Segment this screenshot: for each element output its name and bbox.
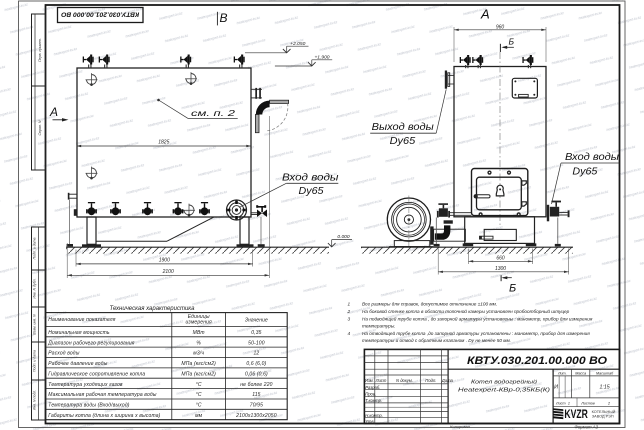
svg-text:Значение: Значение <box>245 318 268 324</box>
svg-text:960: 960 <box>496 24 505 30</box>
svg-text:А: А <box>49 105 58 119</box>
svg-text:Б: Б <box>509 283 516 295</box>
svg-text:70/95: 70/95 <box>250 403 263 409</box>
svg-text:°С: °С <box>196 392 202 398</box>
svg-text:2: 2 <box>347 309 351 314</box>
svg-text:Т.контр.: Т.контр. <box>365 398 382 403</box>
svg-text:1: 1 <box>568 402 570 406</box>
svg-text:0,06 (0,6): 0,06 (0,6) <box>245 372 268 378</box>
svg-text:+2.050: +2.050 <box>290 41 305 47</box>
svg-text:%: % <box>196 340 201 346</box>
svg-text:+1.900: +1.900 <box>314 55 329 61</box>
svg-text:1900: 1900 <box>159 258 170 264</box>
svg-text:температуры.: температуры. <box>362 324 396 329</box>
svg-text:МПа (кгс/см2): МПа (кгс/см2) <box>181 372 216 378</box>
svg-text:На боковой стенке котла в обла: На боковой стенке котла в области топочн… <box>362 308 570 314</box>
svg-text:Heatexpert-КВр-0,35КБ(К): Heatexpert-КВр-0,35КБ(К) <box>458 387 550 393</box>
svg-text:Пров.: Пров. <box>365 392 376 397</box>
svg-text:м3/ч: м3/ч <box>193 351 204 357</box>
svg-text:На подводящей трубе котла ,: На подводящей трубе котла , до запорной … <box>362 316 593 322</box>
svg-text:А: А <box>480 6 490 21</box>
svg-text:измерения: измерения <box>186 320 213 326</box>
svg-text:Перв. примен.: Перв. примен. <box>38 38 42 62</box>
svg-text:Все размеры для справок, допус: Все размеры для справок, допустимое откл… <box>362 301 497 306</box>
svg-text:Справ. N: Справ. N <box>38 120 42 135</box>
svg-text:1: 1 <box>348 301 351 306</box>
svg-text:Dy65: Dy65 <box>390 135 416 147</box>
svg-text:KVZR: KVZR <box>564 407 588 421</box>
svg-text:см. п. 2: см. п. 2 <box>191 108 235 118</box>
svg-text:Габариты котла (длина х ширина: Габариты котла (длина х ширина х высота) <box>48 413 160 419</box>
svg-text:Подп. и дата: Подп. и дата <box>33 350 37 372</box>
svg-text:°С: °С <box>196 403 202 409</box>
svg-text:ЗАВОД РЭП: ЗАВОД РЭП <box>592 415 614 419</box>
svg-text:мм: мм <box>195 413 203 419</box>
svg-text:2100х1300х2050: 2100х1300х2050 <box>235 413 277 419</box>
svg-text:1:15: 1:15 <box>600 385 610 391</box>
svg-text:И: И <box>554 384 558 390</box>
svg-text:МПа (кгс/см2): МПа (кгс/см2) <box>181 361 216 367</box>
svg-text:Выход воды: Выход воды <box>372 121 434 133</box>
svg-text:Максимальная рабочая температу: Максимальная рабочая температура воды <box>48 392 157 398</box>
svg-text:1300: 1300 <box>495 266 506 272</box>
svg-text:Разраб.: Разраб. <box>365 385 380 390</box>
svg-text:0,35: 0,35 <box>251 330 261 336</box>
svg-text:Dy65: Dy65 <box>572 166 597 178</box>
svg-text:Формат А3: Формат А3 <box>575 424 599 429</box>
svg-text:Подп.: Подп. <box>425 378 436 383</box>
svg-text:1825: 1825 <box>158 140 169 146</box>
svg-text:МВт: МВт <box>193 330 205 336</box>
svg-text:Дата: Дата <box>441 378 454 383</box>
svg-text:2100: 2100 <box>162 269 174 275</box>
svg-text:не более 220: не более 220 <box>240 382 272 388</box>
svg-text:Взам. инв. N: Взам. инв. N <box>33 314 37 335</box>
svg-text:12: 12 <box>253 351 259 357</box>
svg-text:Н.контр.: Н.контр. <box>365 413 383 418</box>
svg-text:Инв. N дубл.: Инв. N дубл. <box>33 278 37 298</box>
svg-text:115: 115 <box>252 392 260 398</box>
svg-text:температуры и отвод с обратным: температуры и отвод с обратным клапаном … <box>362 338 511 343</box>
svg-text:Вход воды: Вход воды <box>282 172 339 184</box>
svg-text:Диапазон рабочего регулировани: Диапазон рабочего регулирования <box>47 340 134 346</box>
svg-text:Гидравлическое сопротивление к: Гидравлическое сопротивление котла <box>48 372 145 378</box>
svg-text:3: 3 <box>348 317 351 322</box>
svg-text:Номинальная мощность: Номинальная мощность <box>48 330 110 336</box>
svg-text:Копировал: Копировал <box>450 424 471 429</box>
svg-text:Техническая характеристика: Техническая характеристика <box>110 306 196 312</box>
svg-text:Листов: Листов <box>580 402 595 406</box>
svg-text:Температура воды (Вход/выход): Температура воды (Вход/выход) <box>48 403 129 409</box>
svg-text:Лит.: Лит. <box>557 371 567 375</box>
svg-text:На отводящей трубе котла ,до з: На отводящей трубе котла ,до запорной ар… <box>362 330 590 336</box>
svg-text:Вход воды: Вход воды <box>565 151 619 163</box>
svg-text:0,6 (6,0): 0,6 (6,0) <box>246 361 266 367</box>
svg-text:2: 2 <box>607 402 610 406</box>
svg-text:КОТЕЛЬНЫЙ: КОТЕЛЬНЫЙ <box>592 410 616 414</box>
svg-text:Изм.: Изм. <box>365 378 374 383</box>
svg-text:Лист: Лист <box>375 378 387 383</box>
svg-text:N докум.: N докум. <box>396 378 413 383</box>
svg-text:Температура уходящих газов: Температура уходящих газов <box>48 382 123 388</box>
svg-text:Котел водогрейный: Котел водогрейный <box>471 379 538 386</box>
svg-text:°С: °С <box>196 382 202 388</box>
svg-text:Лист: Лист <box>555 402 566 406</box>
svg-text:660: 660 <box>496 255 505 261</box>
svg-text:50-100: 50-100 <box>248 340 265 346</box>
svg-text:КВТУ.030.201.00.000 ВО: КВТУ.030.201.00.000 ВО <box>60 11 139 18</box>
svg-text:Утв.: Утв. <box>365 419 375 424</box>
svg-text:Рабочее давление воды: Рабочее давление воды <box>48 361 107 367</box>
svg-text:Подп. и дата: Подп. и дата <box>33 237 37 259</box>
svg-text:Б: Б <box>509 37 515 47</box>
svg-text:В: В <box>220 11 228 25</box>
svg-text:Масштаб: Масштаб <box>596 371 614 375</box>
svg-text:Инв. N подл.: Инв. N подл. <box>33 390 37 410</box>
svg-text:Dy65: Dy65 <box>299 185 324 197</box>
svg-text:Масса: Масса <box>575 371 586 375</box>
svg-text:Расход воды: Расход воды <box>48 351 79 357</box>
svg-text:КВТУ.030.201.00.000 ВО: КВТУ.030.201.00.000 ВО <box>467 355 607 367</box>
svg-text:4: 4 <box>348 331 351 336</box>
svg-text:Наименование показателя: Наименование показателя <box>48 317 115 323</box>
